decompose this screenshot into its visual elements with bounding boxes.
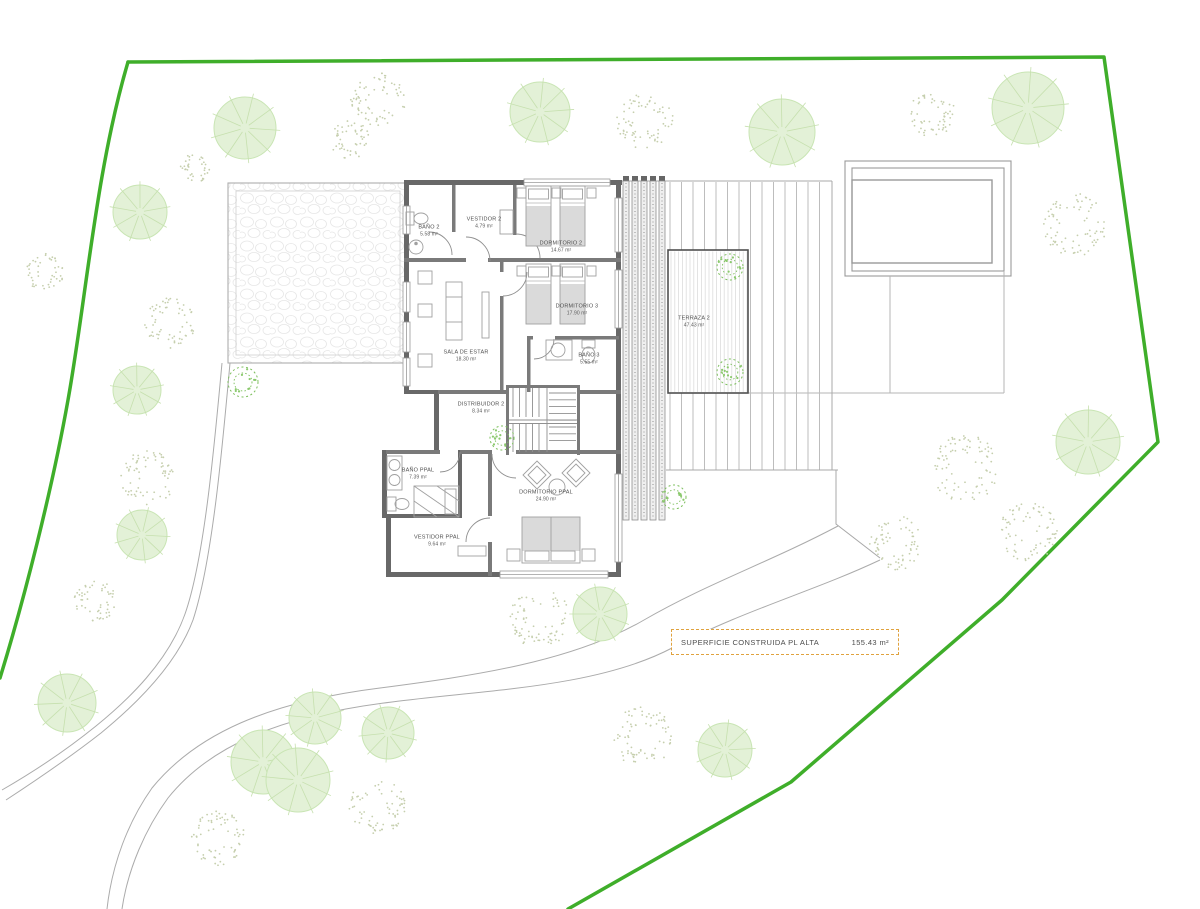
stipple-dot bbox=[381, 781, 383, 783]
shrub-dot bbox=[235, 390, 237, 392]
stipple-dot bbox=[913, 543, 915, 545]
stipple-dot bbox=[1036, 552, 1038, 554]
stipple-dot bbox=[1103, 236, 1105, 238]
stipple-dot bbox=[146, 504, 148, 506]
stipple-tree bbox=[120, 450, 173, 505]
stipple-dot bbox=[1015, 534, 1017, 536]
stipple-tree bbox=[74, 581, 115, 622]
stipple-dot bbox=[224, 819, 226, 821]
stipple-dot bbox=[1044, 545, 1046, 547]
stipple-dot bbox=[138, 471, 140, 473]
stipple-dot bbox=[335, 145, 337, 147]
stipple-dot bbox=[176, 298, 178, 300]
stipple-dot bbox=[208, 820, 210, 822]
stipple-dot bbox=[191, 311, 193, 313]
shrub-tree bbox=[662, 485, 686, 509]
stipple-dot bbox=[949, 117, 951, 119]
stipple-dot bbox=[351, 125, 353, 127]
stipple-dot bbox=[1008, 521, 1010, 523]
stipple-dot bbox=[869, 543, 871, 545]
room-area: 5.55 m² bbox=[578, 359, 599, 365]
shrub-dot bbox=[682, 499, 684, 501]
stipple-dot bbox=[628, 736, 630, 738]
stipple-dot bbox=[898, 558, 900, 560]
room-area: 9.64 m² bbox=[414, 541, 460, 547]
stipple-dot bbox=[562, 619, 564, 621]
stipple-dot bbox=[1087, 250, 1089, 252]
shrub-dot bbox=[495, 429, 497, 431]
stipple-dot bbox=[191, 173, 193, 175]
stipple-dot bbox=[1031, 554, 1033, 556]
stipple-dot bbox=[382, 824, 384, 826]
stipple-dot bbox=[617, 734, 619, 736]
shrub-dot bbox=[678, 492, 680, 494]
stipple-dot bbox=[949, 111, 951, 113]
stipple-dot bbox=[1050, 538, 1052, 540]
stipple-dot bbox=[28, 268, 30, 270]
stipple-dot bbox=[1054, 242, 1056, 244]
stipple-dot bbox=[887, 566, 889, 568]
stipple-dot bbox=[923, 132, 925, 134]
stipple-dot bbox=[986, 470, 988, 472]
stipple-dot bbox=[960, 498, 962, 500]
stipple-tree bbox=[332, 120, 369, 159]
stipple-dot bbox=[634, 131, 636, 133]
stipple-dot bbox=[1055, 235, 1057, 237]
stipple-dot bbox=[155, 308, 157, 310]
stipple-dot bbox=[1052, 533, 1054, 535]
stipple-dot bbox=[49, 257, 51, 259]
stipple-dot bbox=[198, 827, 200, 829]
stipple-dot bbox=[170, 347, 172, 349]
stipple-dot bbox=[1085, 233, 1087, 235]
stipple-dot bbox=[1009, 523, 1011, 525]
stipple-dot bbox=[984, 448, 986, 450]
stipple-dot bbox=[1002, 517, 1004, 519]
stipple-dot bbox=[85, 586, 87, 588]
stipple-dot bbox=[357, 113, 359, 115]
stipple-dot bbox=[339, 139, 341, 141]
stipple-dot bbox=[221, 816, 223, 818]
stipple-dot bbox=[1007, 550, 1009, 552]
stipple-dot bbox=[394, 84, 396, 86]
stipple-dot bbox=[135, 495, 137, 497]
stipple-dot bbox=[975, 486, 977, 488]
pool-water bbox=[852, 180, 992, 263]
stipple-dot bbox=[375, 824, 377, 826]
stipple-dot bbox=[174, 342, 176, 344]
stipple-dot bbox=[981, 477, 983, 479]
stipple-dot bbox=[899, 520, 901, 522]
stipple-dot bbox=[1033, 507, 1035, 509]
stipple-dot bbox=[1005, 519, 1007, 521]
canopy-tree bbox=[211, 94, 280, 163]
stipple-dot bbox=[969, 441, 971, 443]
stipple-dot bbox=[159, 331, 161, 333]
stipple-dot bbox=[659, 712, 661, 714]
stipple-dot bbox=[526, 597, 528, 599]
stipple-dot bbox=[1081, 200, 1083, 202]
stipple-dot bbox=[663, 742, 665, 744]
stipple-dot bbox=[538, 633, 540, 635]
stipple-dot bbox=[54, 257, 56, 259]
stipple-dot bbox=[635, 724, 637, 726]
stipple-dot bbox=[944, 121, 946, 123]
bed-pillow bbox=[563, 267, 583, 277]
stipple-dot bbox=[987, 442, 989, 444]
stipple-dot bbox=[1052, 544, 1054, 546]
stipple-dot bbox=[45, 253, 47, 255]
stipple-dot bbox=[943, 119, 945, 121]
canopy-circle bbox=[117, 510, 167, 560]
stipple-dot bbox=[519, 632, 521, 634]
stipple-dot bbox=[186, 321, 188, 323]
stipple-dot bbox=[81, 599, 83, 601]
stipple-dot bbox=[54, 267, 56, 269]
stipple-dot bbox=[627, 752, 629, 754]
stipple-dot bbox=[945, 130, 947, 132]
stipple-dot bbox=[161, 462, 163, 464]
stipple-dot bbox=[172, 471, 174, 473]
stipple-dot bbox=[61, 267, 63, 269]
canopy-circle bbox=[214, 97, 276, 159]
stipple-dot bbox=[156, 304, 158, 306]
stipple-dot bbox=[157, 338, 159, 340]
stipple-dot bbox=[243, 829, 245, 831]
stipple-dot bbox=[48, 286, 50, 288]
stipple-dot bbox=[1021, 503, 1023, 505]
stipple-dot bbox=[1094, 232, 1096, 234]
stipple-dot bbox=[342, 131, 344, 133]
stipple-dot bbox=[641, 711, 643, 713]
stipple-dot bbox=[139, 478, 141, 480]
stipple-dot bbox=[635, 136, 637, 138]
stipple-dot bbox=[949, 104, 951, 106]
stipple-dot bbox=[1072, 247, 1074, 249]
stipple-dot bbox=[909, 529, 911, 531]
stipple-dot bbox=[359, 143, 361, 145]
stipple-dot bbox=[986, 493, 988, 495]
stipple-dot bbox=[365, 118, 367, 120]
stipple-dot bbox=[930, 94, 932, 96]
stipple-dot bbox=[665, 731, 667, 733]
stipple-dot bbox=[189, 159, 191, 161]
stipple-dot bbox=[514, 626, 516, 628]
stipple-dot bbox=[204, 173, 206, 175]
stipple-dot bbox=[978, 447, 980, 449]
room-label-bano-3: BAÑO 35.55 m² bbox=[578, 352, 599, 365]
stipple-dot bbox=[396, 825, 398, 827]
stipple-dot bbox=[159, 496, 161, 498]
stipple-dot bbox=[1091, 204, 1093, 206]
stipple-dot bbox=[189, 309, 191, 311]
stipple-dot bbox=[37, 275, 39, 277]
stipple-dot bbox=[1054, 537, 1056, 539]
stipple-dot bbox=[403, 798, 405, 800]
stipple-dot bbox=[53, 285, 55, 287]
stipple-dot bbox=[1050, 227, 1052, 229]
shrub-dot bbox=[496, 435, 498, 437]
stipple-dot bbox=[192, 175, 194, 177]
canopy-tree bbox=[110, 363, 164, 416]
stipple-dot bbox=[32, 283, 34, 285]
stipple-dot bbox=[168, 338, 170, 340]
stipple-dot bbox=[101, 588, 103, 590]
stipple-dot bbox=[128, 491, 130, 493]
canopy-tree bbox=[696, 719, 756, 780]
stipple-dot bbox=[619, 133, 621, 135]
stipple-dot bbox=[623, 104, 625, 106]
stipple-dot bbox=[1006, 548, 1008, 550]
stipple-dot bbox=[647, 133, 649, 135]
stipple-dot bbox=[1029, 517, 1031, 519]
bed-pillow bbox=[529, 267, 549, 277]
stipple-dot bbox=[881, 534, 883, 536]
stipple-dot bbox=[29, 263, 31, 265]
stipple-dot bbox=[954, 443, 956, 445]
stipple-dot bbox=[934, 465, 936, 467]
stipple-dot bbox=[51, 275, 53, 277]
stipple-dot bbox=[966, 452, 968, 454]
stipple-dot bbox=[84, 607, 86, 609]
stipple-dot bbox=[392, 813, 394, 815]
stipple-dot bbox=[399, 804, 401, 806]
stipple-dot bbox=[627, 721, 629, 723]
stipple-dot bbox=[647, 130, 649, 132]
stipple-dot bbox=[378, 784, 380, 786]
stipple-dot bbox=[236, 828, 238, 830]
stipple-dot bbox=[1049, 518, 1051, 520]
stipple-dot bbox=[130, 482, 132, 484]
stipple-dot bbox=[1012, 510, 1014, 512]
stipple-dot bbox=[1053, 518, 1055, 520]
stipple-dot bbox=[632, 754, 634, 756]
stipple-dot bbox=[882, 539, 884, 541]
room-label-dormitorio-2: DORMITORIO 214.67 m² bbox=[540, 240, 583, 253]
stipple-dot bbox=[365, 86, 367, 88]
stipple-dot bbox=[905, 567, 907, 569]
stipple-dot bbox=[649, 101, 651, 103]
stipple-dot bbox=[987, 446, 989, 448]
stipple-dot bbox=[211, 813, 213, 815]
stipple-dot bbox=[147, 457, 149, 459]
stipple-dot bbox=[1016, 505, 1018, 507]
stipple-dot bbox=[551, 633, 553, 635]
stipple-dot bbox=[903, 516, 905, 518]
stipple-dot bbox=[1023, 520, 1025, 522]
stipple-dot bbox=[1085, 197, 1087, 199]
room-name: BAÑO 3 bbox=[578, 352, 599, 358]
stipple-dot bbox=[386, 802, 388, 804]
stipple-dot bbox=[162, 301, 164, 303]
stipple-dot bbox=[216, 818, 218, 820]
stipple-dot bbox=[185, 160, 187, 162]
bed-pillow bbox=[563, 189, 583, 199]
stipple-dot bbox=[401, 798, 403, 800]
stipple-dot bbox=[356, 97, 358, 99]
stipple-dot bbox=[918, 131, 920, 133]
floor-plan-drawing bbox=[0, 0, 1200, 909]
stipple-dot bbox=[902, 555, 904, 557]
stipple-dot bbox=[37, 271, 39, 273]
stipple-dot bbox=[387, 807, 389, 809]
stipple-dot bbox=[551, 640, 553, 642]
stipple-dot bbox=[96, 617, 98, 619]
stipple-dot bbox=[941, 468, 943, 470]
stipple-dot bbox=[1055, 203, 1057, 205]
stipple-tree bbox=[180, 154, 210, 181]
stipple-dot bbox=[654, 102, 656, 104]
stipple-dot bbox=[514, 629, 516, 631]
stipple-dot bbox=[398, 87, 400, 89]
stipple-dot bbox=[659, 741, 661, 743]
room-name: BAÑO PPAL bbox=[402, 467, 435, 473]
stipple-dot bbox=[158, 334, 160, 336]
stipple-dot bbox=[384, 110, 386, 112]
shrub-ring bbox=[662, 485, 686, 509]
stipple-dot bbox=[153, 310, 155, 312]
louver-strip bbox=[659, 181, 665, 520]
stipple-dot bbox=[945, 126, 947, 128]
stipple-dot bbox=[197, 851, 199, 853]
stipple-dot bbox=[625, 121, 627, 123]
built-area-summary-box: SUPERFICIE CONSTRUIDA PL ALTA 155.43 m² bbox=[671, 629, 899, 655]
stipple-dot bbox=[32, 280, 34, 282]
stipple-tree bbox=[1043, 193, 1105, 255]
stipple-dot bbox=[936, 468, 938, 470]
stipple-dot bbox=[126, 467, 128, 469]
stipple-dot bbox=[142, 495, 144, 497]
stipple-dot bbox=[630, 125, 632, 127]
stipple-dot bbox=[358, 156, 360, 158]
room-area: 8.34 m² bbox=[458, 408, 505, 414]
stipple-dot bbox=[1096, 230, 1098, 232]
stipple-dot bbox=[173, 336, 175, 338]
shrub-tree bbox=[228, 367, 258, 397]
stipple-dot bbox=[347, 150, 349, 152]
stipple-dot bbox=[60, 275, 62, 277]
stipple-dot bbox=[364, 144, 366, 146]
stipple-tree bbox=[869, 516, 919, 570]
stipple-dot bbox=[885, 524, 887, 526]
stipple-dot bbox=[912, 120, 914, 122]
stipple-dot bbox=[48, 284, 50, 286]
stipple-dot bbox=[1077, 251, 1079, 253]
stipple-dot bbox=[638, 96, 640, 98]
stipple-dot bbox=[1055, 533, 1057, 535]
stipple-dot bbox=[137, 487, 139, 489]
stipple-dot bbox=[89, 586, 91, 588]
stipple-tree bbox=[613, 706, 672, 762]
stipple-dot bbox=[187, 177, 189, 179]
stipple-dot bbox=[112, 596, 114, 598]
stipple-dot bbox=[917, 529, 919, 531]
canopy-tree bbox=[988, 67, 1069, 147]
stipple-dot bbox=[1088, 210, 1090, 212]
stipple-dot bbox=[113, 606, 115, 608]
stipple-dot bbox=[555, 631, 557, 633]
stipple-tree bbox=[144, 297, 194, 348]
stipple-dot bbox=[630, 752, 632, 754]
stipple-dot bbox=[383, 87, 385, 89]
stipple-dot bbox=[145, 327, 147, 329]
stipple-dot bbox=[379, 830, 381, 832]
stipple-dot bbox=[651, 135, 653, 137]
stipple-dot bbox=[623, 133, 625, 135]
stipple-dot bbox=[910, 548, 912, 550]
stipple-dot bbox=[946, 479, 948, 481]
stipple-dot bbox=[162, 312, 164, 314]
stipple-dot bbox=[396, 93, 398, 95]
stipple-tree bbox=[510, 592, 568, 644]
shrub-dot bbox=[718, 261, 720, 263]
stipple-dot bbox=[162, 465, 164, 467]
stipple-dot bbox=[893, 555, 895, 557]
stipple-dot bbox=[81, 592, 83, 594]
stipple-dot bbox=[167, 465, 169, 467]
stipple-dot bbox=[372, 832, 374, 834]
stipple-dot bbox=[382, 117, 384, 119]
stipple-dot bbox=[659, 108, 661, 110]
stipple-dot bbox=[100, 604, 102, 606]
stipple-dot bbox=[656, 723, 658, 725]
stipple-dot bbox=[109, 615, 111, 617]
stipple-dot bbox=[201, 858, 203, 860]
stipple-dot bbox=[973, 498, 975, 500]
room-area: 47.43 m² bbox=[678, 322, 710, 328]
stipple-dot bbox=[169, 471, 171, 473]
stipple-dot bbox=[242, 834, 244, 836]
stipple-dot bbox=[650, 717, 652, 719]
stipple-dot bbox=[165, 497, 167, 499]
stipple-dot bbox=[169, 494, 171, 496]
shrub-ring bbox=[228, 367, 258, 397]
stipple-dot bbox=[911, 111, 913, 113]
stipple-dot bbox=[1014, 519, 1016, 521]
stipple-dot bbox=[949, 124, 951, 126]
stipple-dot bbox=[659, 111, 661, 113]
pebble-terrace bbox=[228, 183, 408, 363]
stipple-dot bbox=[515, 618, 517, 620]
stipple-dot bbox=[565, 604, 567, 606]
summary-value: 155.43 m² bbox=[852, 638, 889, 647]
stipple-dot bbox=[403, 802, 405, 804]
stipple-dot bbox=[531, 636, 533, 638]
stipple-dot bbox=[619, 735, 621, 737]
stipple-dot bbox=[87, 598, 89, 600]
shrub-dot bbox=[721, 369, 723, 371]
stipple-dot bbox=[1076, 199, 1078, 201]
stipple-dot bbox=[200, 833, 202, 835]
stipple-dot bbox=[958, 486, 960, 488]
room-area: 4.79 m² bbox=[467, 223, 502, 229]
stipple-dot bbox=[988, 451, 990, 453]
stipple-dot bbox=[623, 118, 625, 120]
room-label-bano-2: BAÑO 25.58 m² bbox=[418, 224, 439, 237]
stipple-dot bbox=[360, 100, 362, 102]
louver-cap bbox=[650, 176, 656, 181]
stipple-dot bbox=[129, 466, 131, 468]
stipple-dot bbox=[981, 450, 983, 452]
stipple-dot bbox=[918, 103, 920, 105]
stipple-dot bbox=[977, 437, 979, 439]
stipple-dot bbox=[1056, 244, 1058, 246]
stipple-dot bbox=[202, 854, 204, 856]
stipple-dot bbox=[208, 830, 210, 832]
room-name: DORMITORIO 3 bbox=[556, 303, 599, 309]
stipple-dot bbox=[950, 451, 952, 453]
stipple-dot bbox=[653, 109, 655, 111]
